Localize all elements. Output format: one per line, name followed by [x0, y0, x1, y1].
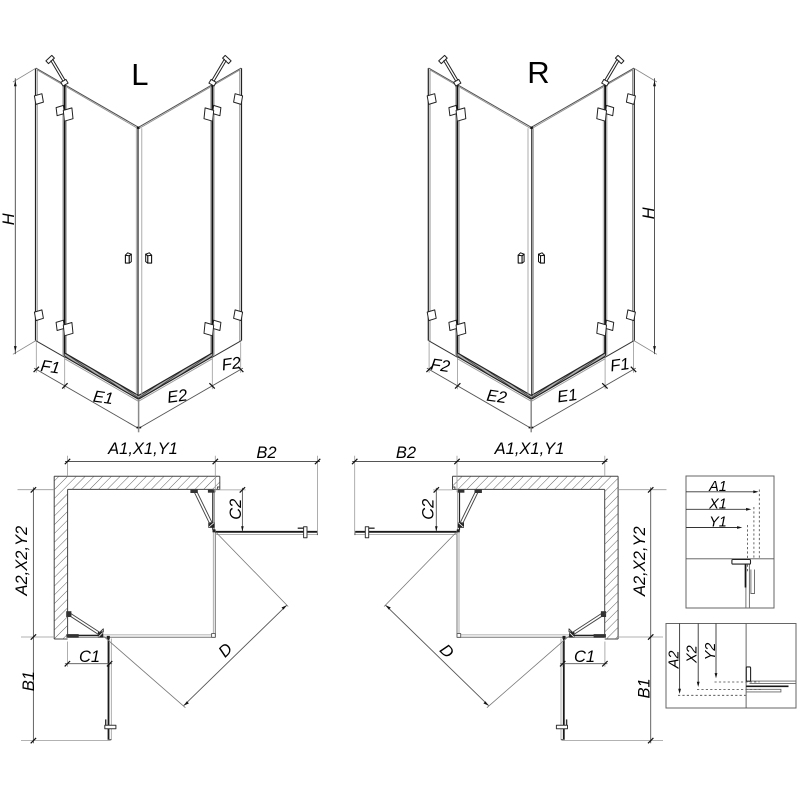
svg-text:E1: E1 [92, 388, 114, 409]
svg-text:B2: B2 [396, 444, 416, 462]
svg-text:A2,X2,Y2: A2,X2,Y2 [13, 526, 31, 597]
svg-text:A2: A2 [666, 651, 682, 670]
svg-text:B1: B1 [20, 671, 38, 691]
svg-text:X2: X2 [685, 645, 701, 664]
svg-text:A1,X1,Y1: A1,X1,Y1 [494, 440, 565, 458]
svg-text:F1: F1 [39, 357, 61, 378]
svg-text:E2: E2 [166, 386, 188, 407]
svg-text:F1: F1 [609, 355, 631, 376]
svg-text:A1: A1 [708, 479, 727, 495]
svg-text:F2: F2 [429, 356, 451, 377]
svg-text:L: L [131, 57, 148, 92]
svg-text:R: R [527, 55, 549, 90]
svg-text:C2: C2 [420, 499, 438, 520]
svg-text:Y1: Y1 [709, 515, 727, 531]
svg-text:F2: F2 [221, 354, 243, 375]
svg-text:H: H [0, 213, 18, 225]
svg-text:B1: B1 [635, 678, 653, 698]
svg-text:E1: E1 [556, 386, 578, 407]
svg-text:A1,X1,Y1: A1,X1,Y1 [107, 440, 178, 458]
svg-text:C1: C1 [79, 648, 100, 666]
svg-text:Y2: Y2 [703, 643, 719, 661]
svg-text:B2: B2 [256, 444, 276, 462]
svg-text:A2,X2,Y2: A2,X2,Y2 [631, 526, 649, 597]
svg-text:X1: X1 [708, 497, 727, 513]
svg-text:C1: C1 [574, 648, 595, 666]
svg-text:H: H [640, 207, 658, 219]
svg-text:C2: C2 [227, 499, 245, 520]
svg-text:E2: E2 [485, 387, 507, 408]
